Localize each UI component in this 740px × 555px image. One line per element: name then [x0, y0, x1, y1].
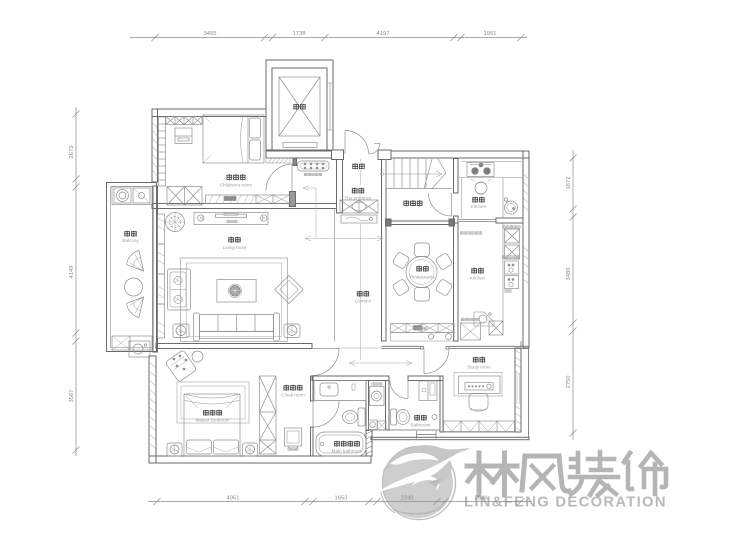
svg-text:4197: 4197: [377, 31, 390, 37]
svg-text:Living room: Living room: [223, 245, 247, 250]
svg-text:2240: 2240: [401, 496, 414, 502]
svg-text:2673: 2673: [69, 146, 75, 159]
svg-text:2750: 2750: [566, 376, 572, 389]
svg-text:1653: 1653: [335, 496, 348, 502]
svg-text:The entrance: The entrance: [344, 196, 372, 201]
svg-text:3567: 3567: [69, 390, 75, 403]
svg-text:1951: 1951: [484, 31, 497, 37]
svg-text:4951: 4951: [227, 496, 240, 502]
svg-text:1872: 1872: [566, 177, 572, 190]
svg-text:Restaurante: Restaurante: [410, 275, 435, 280]
svg-text:4149: 4149: [69, 266, 75, 279]
svg-text:2546: 2546: [475, 496, 488, 502]
svg-text:Main bathroom: Main bathroom: [332, 449, 363, 454]
svg-text:3455: 3455: [204, 31, 217, 37]
svg-text:Bathroom: Bathroom: [411, 423, 431, 428]
svg-text:Study room: Study room: [467, 365, 491, 370]
svg-text:Balcony: Balcony: [122, 238, 139, 243]
svg-text:Kitchen: Kitchen: [470, 276, 486, 281]
svg-text:Kitchen: Kitchen: [471, 204, 487, 209]
svg-text:3480: 3480: [566, 268, 572, 281]
svg-text:Corridor: Corridor: [355, 299, 372, 304]
svg-text:Master Bedroom: Master Bedroom: [196, 418, 230, 423]
svg-text:Cloak room: Cloak room: [281, 393, 305, 398]
svg-text:Children's room: Children's room: [220, 183, 252, 188]
svg-text:1738: 1738: [293, 31, 306, 37]
svg-text:LIN&FENG DECORATION: LIN&FENG DECORATION: [464, 495, 667, 511]
